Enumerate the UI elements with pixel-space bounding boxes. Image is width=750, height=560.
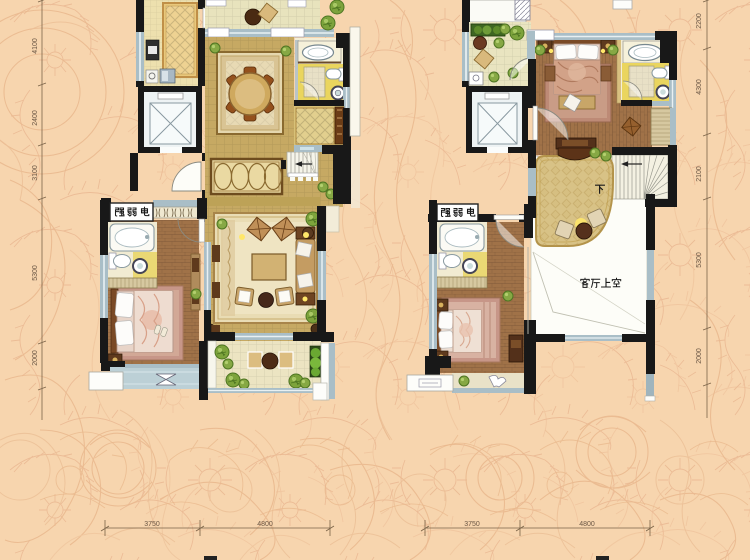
- svg-text:4100: 4100: [32, 38, 39, 54]
- svg-text:2100: 2100: [696, 166, 703, 182]
- svg-text:5300: 5300: [696, 252, 703, 268]
- svg-text:4800: 4800: [579, 521, 595, 528]
- svg-text:2200: 2200: [696, 13, 703, 29]
- svg-text:2000: 2000: [32, 350, 39, 366]
- svg-text:5300: 5300: [32, 265, 39, 281]
- svg-text:3750: 3750: [144, 521, 160, 528]
- svg-text:4300: 4300: [696, 79, 703, 95]
- svg-text:4800: 4800: [257, 521, 273, 528]
- svg-text:2400: 2400: [32, 110, 39, 126]
- svg-text:3100: 3100: [32, 165, 39, 181]
- svg-text:3750: 3750: [464, 521, 480, 528]
- svg-text:2000: 2000: [696, 348, 703, 364]
